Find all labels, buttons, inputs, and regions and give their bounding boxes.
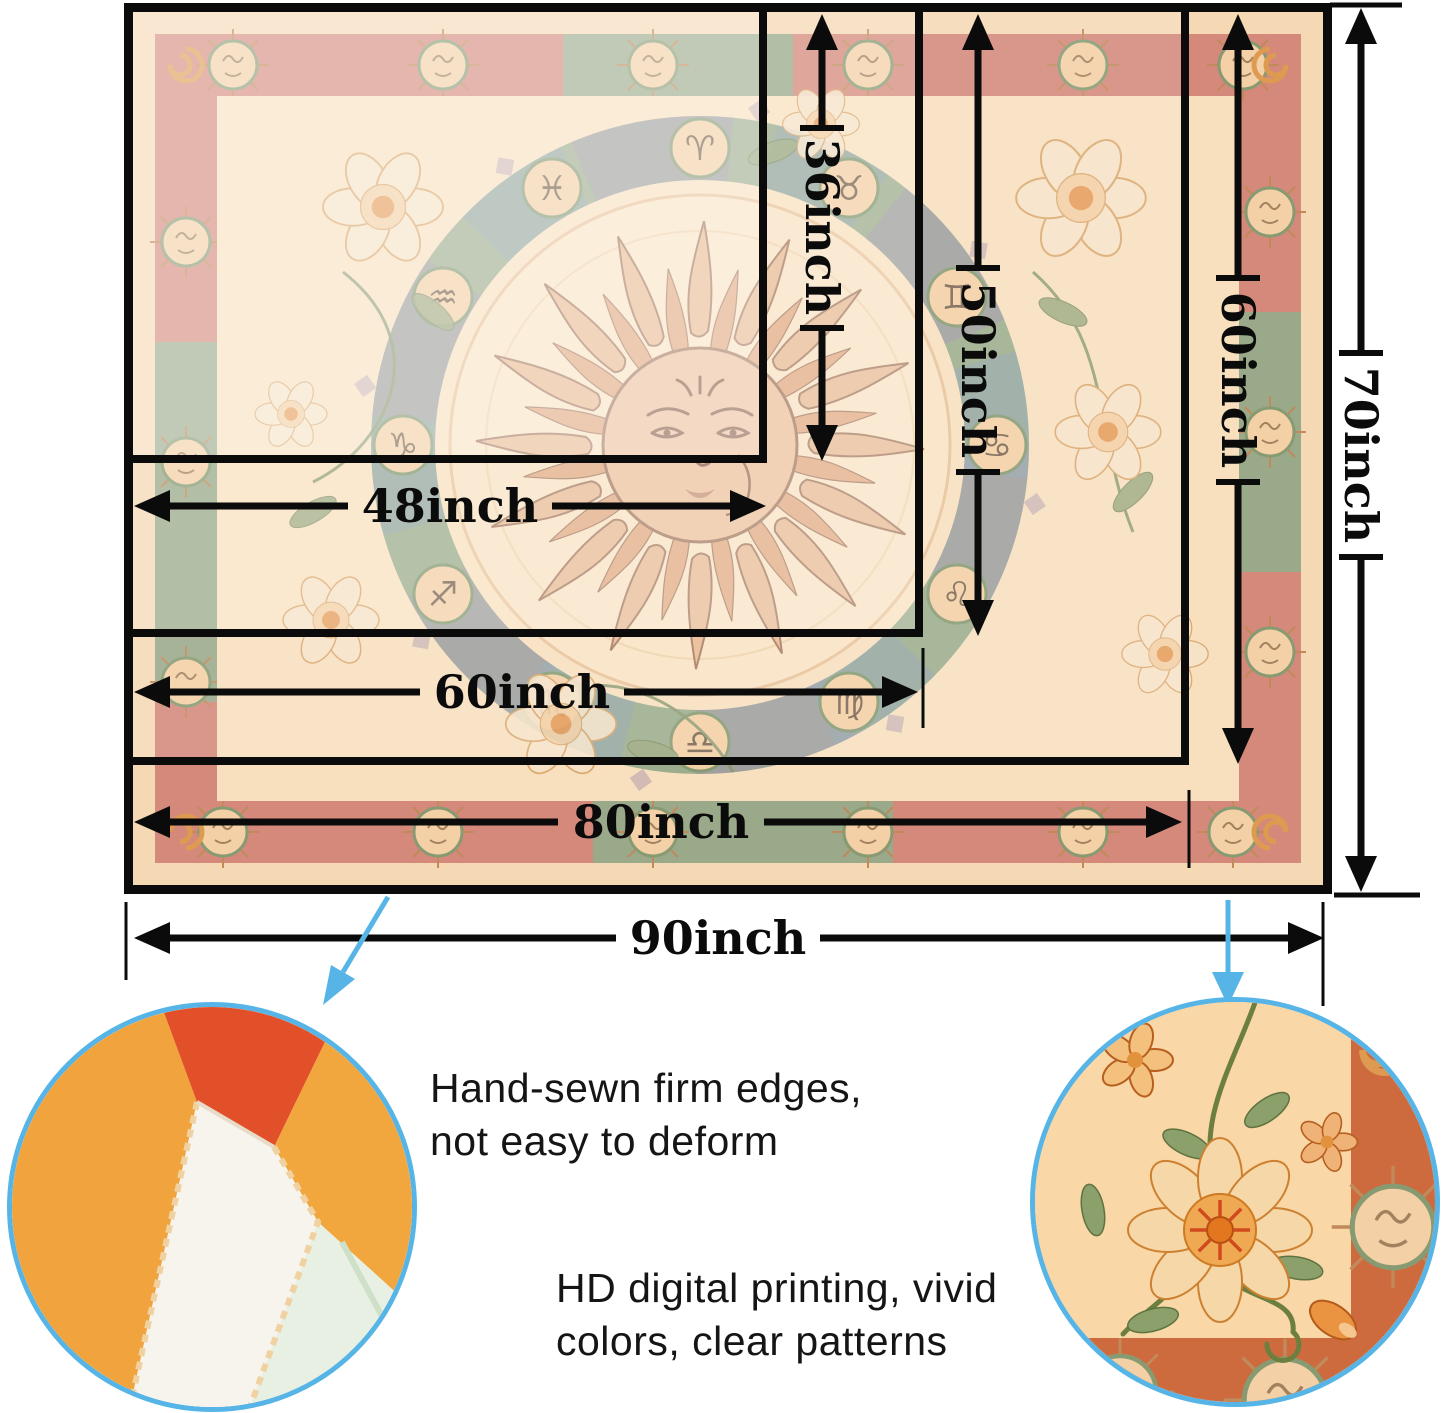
- dim-label-70inch: 70inch: [1334, 367, 1388, 543]
- blue-pointer-arrow-right: [1212, 900, 1244, 1006]
- fabric-closeup-image: [12, 1007, 412, 1407]
- blue-pointer-arrow-left: [323, 897, 388, 1005]
- dim-label-80inch: 80inch: [573, 795, 749, 849]
- dim-label-50inch: 50inch: [951, 282, 1005, 458]
- left-detail-circle: [7, 1002, 417, 1412]
- floral-closeup-image: [1035, 1002, 1435, 1402]
- dim-label-48inch: 48inch: [362, 479, 538, 533]
- size-outline-48x36: [124, 3, 767, 463]
- product-size-diagram: ♈ ♉ ♊ ♋ ♌ ♍ ♎ ♏ ♐ ♑ ♒ ♓: [0, 0, 1445, 1413]
- feature-line: not easy to deform: [430, 1115, 862, 1168]
- dim-label-90inch: 90inch: [630, 911, 806, 965]
- feature-line: HD digital printing, vivid: [556, 1262, 997, 1315]
- dim-label-60inch-height: 60inch: [1211, 292, 1265, 468]
- feature-line: colors, clear patterns: [556, 1315, 997, 1368]
- dim-label-60inch-width: 60inch: [434, 665, 610, 719]
- feature-text-hd-printing: HD digital printing, vivid colors, clear…: [556, 1262, 997, 1368]
- feature-line: Hand-sewn firm edges,: [430, 1062, 862, 1115]
- feature-text-hand-sewn: Hand-sewn firm edges, not easy to deform: [430, 1062, 862, 1168]
- flower-closeup: [1128, 1138, 1312, 1322]
- dim-label-36inch: 36inch: [795, 139, 849, 315]
- right-detail-circle: [1030, 997, 1440, 1407]
